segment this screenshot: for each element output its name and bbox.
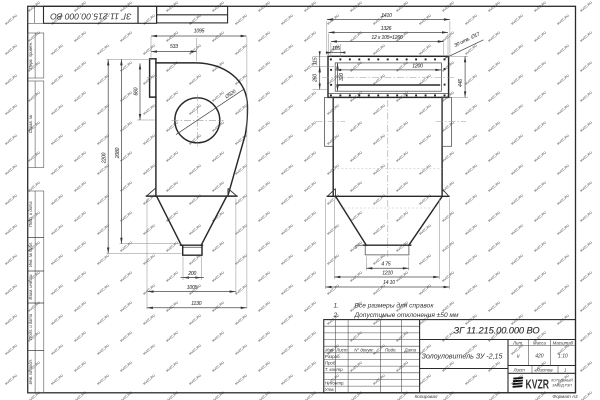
svg-text:2200: 2200 [102,152,108,164]
svg-text:420: 420 [535,354,544,360]
svg-text:Подп. и дата: Подп. и дата [28,313,33,339]
svg-text:ЗГ 11.215.00.000 ВО: ЗГ 11.215.00.000 ВО [50,11,132,21]
svg-text:14 10: 14 10 [383,280,395,286]
svg-text:KVZR: KVZR [526,378,550,392]
svg-text:1200: 1200 [412,63,423,69]
svg-text:Инв. № подл.: Инв. № подл. [28,359,33,384]
svg-text:Все размеры для справок: Все размеры для справок [355,301,435,309]
svg-text:12 х 105=1260: 12 х 105=1260 [371,35,403,41]
svg-text:1:10: 1:10 [558,354,568,360]
svg-text:Золоуловитель ЗУ -2,15: Золоуловитель ЗУ -2,15 [422,351,504,360]
svg-text:200: 200 [187,271,196,277]
svg-text:Утв.: Утв. [325,387,335,392]
svg-text:Справ. №: Справ. № [28,114,33,133]
svg-text:260: 260 [312,74,318,83]
svg-text:Лист: Лист [335,347,348,352]
svg-text:КОТЕЛЬНЫЙ: КОТЕЛЬНЫЙ [551,379,573,383]
svg-text:ЗАВОД РЭП: ЗАВОД РЭП [552,384,572,388]
svg-text:105: 105 [332,46,340,52]
svg-text:Т. контр.: Т. контр. [325,367,344,372]
svg-text:446: 446 [458,79,464,87]
svg-text:Изм: Изм [325,347,333,352]
svg-text:1410: 1410 [381,13,392,19]
svg-text:Подп. и дата: Подп. и дата [28,201,33,227]
svg-text:Лит.: Лит. [512,340,523,345]
svg-text:2080: 2080 [115,147,121,159]
svg-text:Копировал: Копировал [415,394,438,399]
svg-text:1130: 1130 [191,301,202,307]
svg-text:Масштаб: Масштаб [553,340,574,345]
svg-text:533: 533 [170,44,178,50]
svg-text:Инв. № дубл.: Инв. № дубл. [28,242,33,267]
svg-text:1095: 1095 [194,29,205,35]
svg-text:Проб.: Проб. [325,361,337,366]
svg-text:320: 320 [339,73,345,81]
svg-text:ЗГ 11.215.00.000 ВО: ЗГ 11.215.00.000 ВО [453,325,539,335]
svg-text:1005: 1005 [187,285,198,291]
svg-text:Допустимые отклонения ±50 мм: Допустимые отклонения ±50 мм [354,312,459,319]
svg-text:2.: 2. [333,312,340,319]
svg-text:и: и [517,354,520,360]
svg-text:1326: 1326 [381,26,392,32]
svg-text:Лист: Лист [513,368,526,373]
svg-text:Формат А3: Формат А3 [552,394,578,399]
svg-text:1210: 1210 [382,270,393,276]
svg-text:Подп.: Подп. [385,347,397,352]
svg-text:115: 115 [313,57,319,65]
svg-text:Листов: Листов [536,368,554,373]
svg-text:1.: 1. [334,302,340,309]
svg-text:660: 660 [133,87,139,95]
svg-text:Взам. инв. №: Взам. инв. № [28,274,33,300]
svg-text:4 75: 4 75 [381,261,391,267]
svg-text:Масса: Масса [533,340,547,345]
svg-text:Дата: Дата [404,347,417,352]
svg-text:N° докум.: N° докум. [354,347,374,352]
svg-text:Разраб.: Разраб. [325,354,341,359]
svg-text:Н. контр.: Н. контр. [325,381,345,386]
svg-text:Перв. примен.: Перв. примен. [28,42,33,69]
